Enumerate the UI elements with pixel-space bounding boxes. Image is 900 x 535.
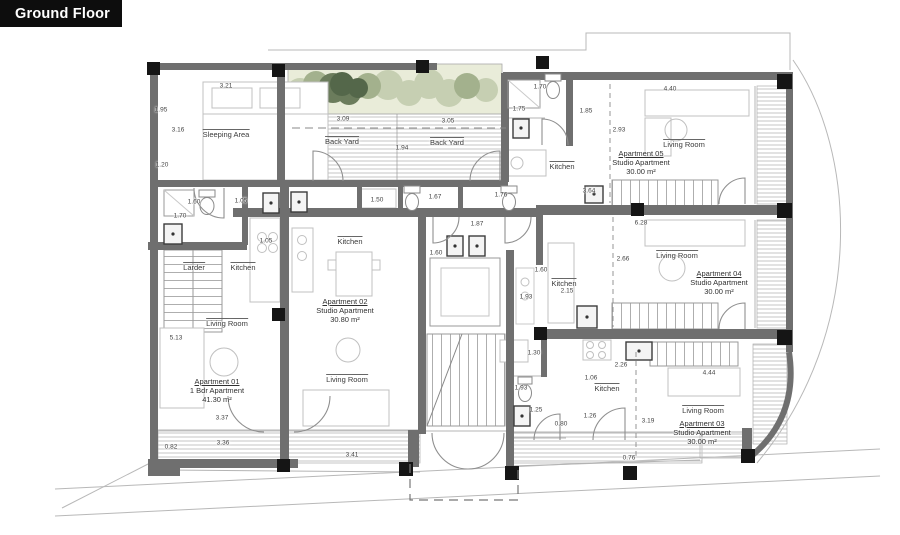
- elevator-shaft: [430, 258, 500, 326]
- floor-plan-drawing: [0, 0, 900, 535]
- floor-plan-page: Ground Floor: [0, 0, 900, 535]
